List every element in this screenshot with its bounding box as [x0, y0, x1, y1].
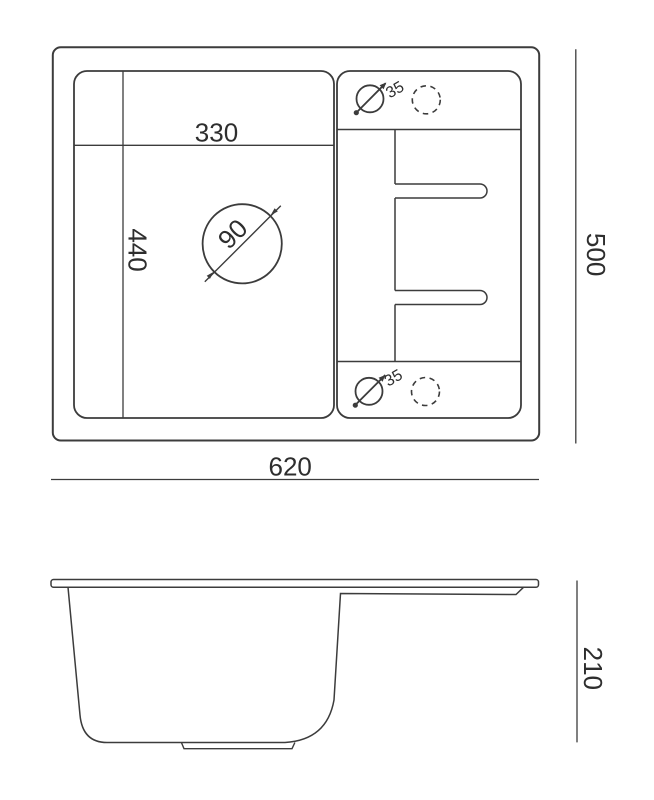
svg-text:330: 330	[195, 118, 238, 148]
svg-text:210: 210	[578, 647, 608, 690]
svg-text:500: 500	[581, 233, 611, 276]
svg-text:620: 620	[269, 451, 312, 481]
svg-text:440: 440	[122, 228, 152, 271]
